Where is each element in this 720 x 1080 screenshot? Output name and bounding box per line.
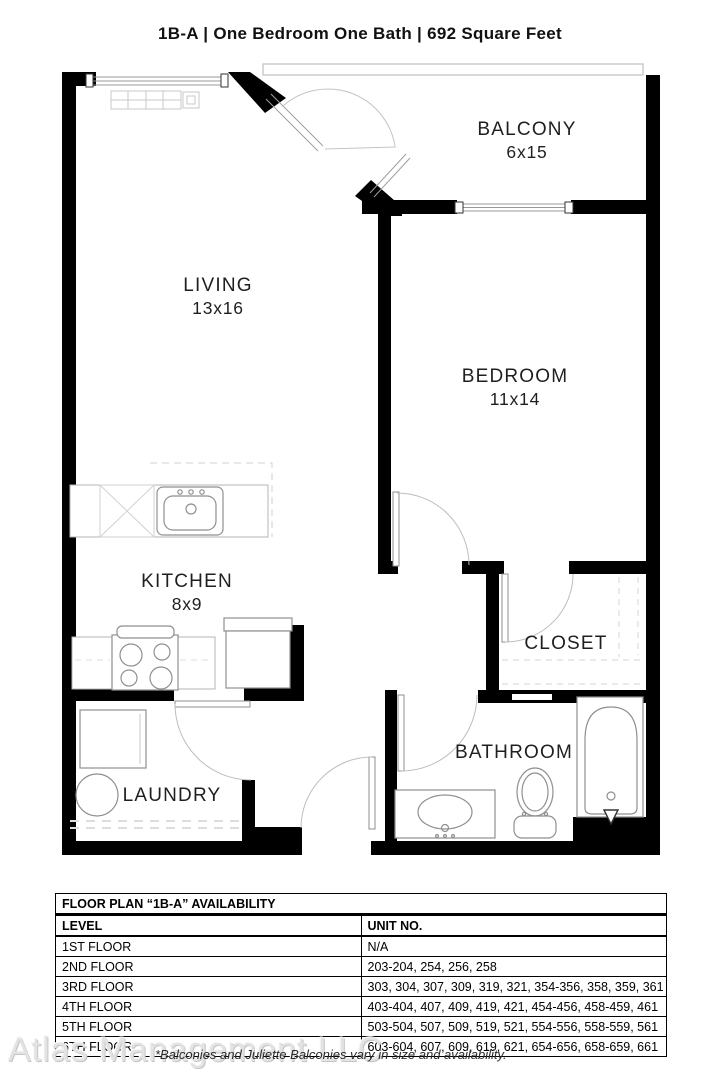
floor-plan-flyer: { "title": "1B-A | One Bedroom One Bath … bbox=[0, 0, 720, 1080]
room-dims: 6x15 bbox=[447, 141, 607, 164]
room-label-bedroom: BEDROOM 11x14 bbox=[435, 365, 595, 411]
footnote: *Balconies and Juliette Balconies vary i… bbox=[155, 1047, 507, 1062]
laundry-door bbox=[175, 701, 251, 780]
units-cell: 303, 304, 307, 309, 319, 321, 354-356, 3… bbox=[361, 977, 667, 997]
bedroom-window bbox=[455, 202, 573, 213]
room-name: BEDROOM bbox=[435, 365, 595, 388]
level-cell: 3RD FLOOR bbox=[56, 977, 362, 997]
entry-door bbox=[301, 757, 375, 829]
table-title-row: FLOOR PLAN “1B-A” AVAILABILITY bbox=[56, 894, 667, 915]
table-header-row: LEVEL UNIT NO. bbox=[56, 915, 667, 937]
room-label-balcony: BALCONY 6x15 bbox=[447, 118, 607, 164]
room-label-closet: CLOSET bbox=[486, 632, 646, 655]
room-name: BATHROOM bbox=[434, 741, 594, 764]
table-row: 4TH FLOOR 403-404, 407, 409, 419, 421, 4… bbox=[56, 997, 667, 1017]
living-window bbox=[86, 74, 228, 87]
floor-plan-drawing bbox=[0, 0, 720, 880]
laundry-threshold bbox=[70, 821, 240, 828]
units-cell: 203-204, 254, 256, 258 bbox=[361, 957, 667, 977]
refrigerator bbox=[224, 618, 292, 688]
vanity-sink bbox=[395, 790, 495, 838]
balcony-door bbox=[266, 89, 410, 197]
level-cell: 1ST FLOOR bbox=[56, 936, 362, 957]
room-name: LIVING bbox=[138, 274, 298, 297]
room-name: KITCHEN bbox=[107, 570, 267, 593]
room-dims: 13x16 bbox=[138, 297, 298, 320]
stove bbox=[112, 626, 178, 690]
closet-shelving bbox=[502, 577, 643, 684]
balcony-railing bbox=[263, 64, 643, 75]
room-name: LAUNDRY bbox=[92, 784, 252, 807]
level-cell: 2ND FLOOR bbox=[56, 957, 362, 977]
bedroom-door bbox=[393, 492, 469, 566]
kitchen-sink bbox=[157, 487, 223, 535]
col-header-level: LEVEL bbox=[56, 915, 362, 937]
table-row: 2ND FLOOR 203-204, 254, 256, 258 bbox=[56, 957, 667, 977]
room-label-living: LIVING 13x16 bbox=[138, 274, 298, 320]
room-dims: 11x14 bbox=[435, 388, 595, 411]
units-cell: 503-504, 507, 509, 519, 521, 554-556, 55… bbox=[361, 1017, 667, 1037]
washer bbox=[80, 710, 146, 768]
level-cell: 4TH FLOOR bbox=[56, 997, 362, 1017]
room-label-laundry: LAUNDRY bbox=[92, 784, 252, 807]
col-header-units: UNIT NO. bbox=[361, 915, 667, 937]
heater bbox=[111, 91, 199, 109]
room-label-bathroom: BATHROOM bbox=[434, 741, 594, 764]
table-row: 3RD FLOOR 303, 304, 307, 309, 319, 321, … bbox=[56, 977, 667, 997]
room-name: BALCONY bbox=[447, 118, 607, 141]
room-name: CLOSET bbox=[486, 632, 646, 655]
table-row: 1ST FLOOR N/A bbox=[56, 936, 667, 957]
table-title: FLOOR PLAN “1B-A” AVAILABILITY bbox=[56, 894, 667, 915]
room-label-kitchen: KITCHEN 8x9 bbox=[107, 570, 267, 616]
units-cell: 403-404, 407, 409, 419, 421, 454-456, 45… bbox=[361, 997, 667, 1017]
toilet bbox=[514, 768, 556, 838]
room-dims: 8x9 bbox=[107, 593, 267, 616]
units-cell: N/A bbox=[361, 936, 667, 957]
